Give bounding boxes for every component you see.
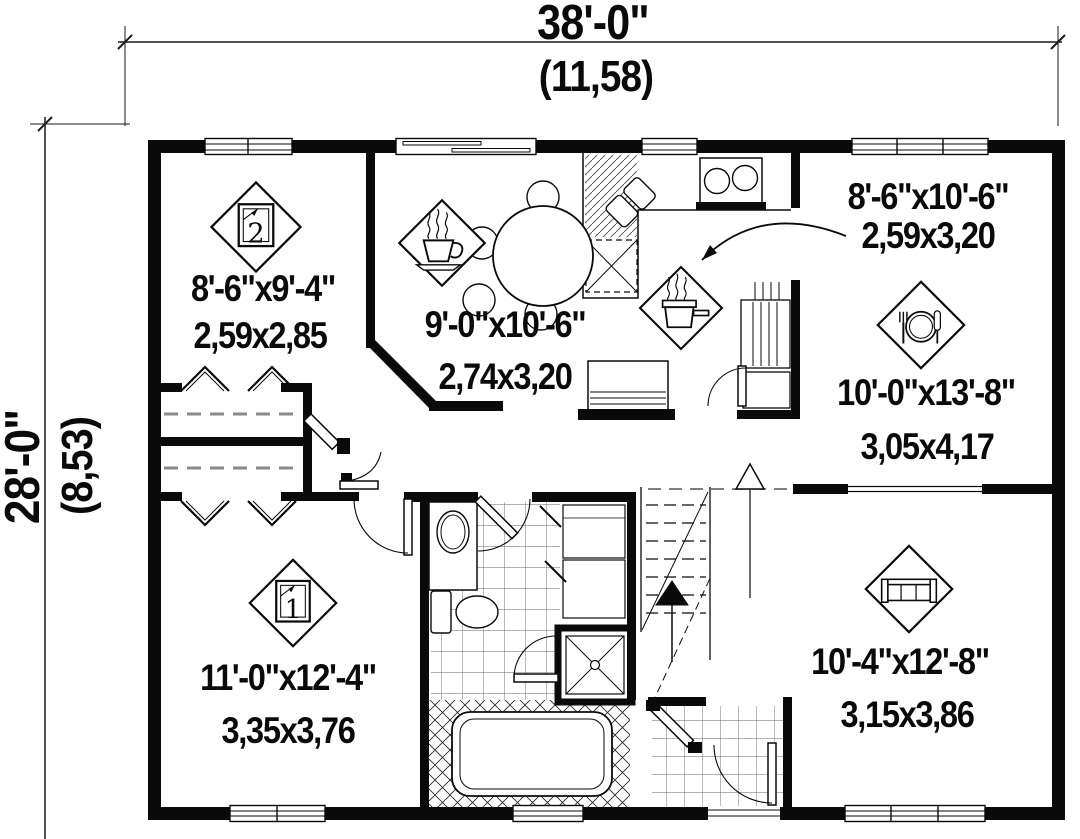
- bedroom-2-size-metric: 2,59x2,85: [194, 315, 327, 357]
- toilet-icon: [431, 591, 451, 633]
- kitchen-size-metric: 2,59x3,20: [862, 215, 995, 257]
- linen-cabinet: [563, 505, 625, 558]
- bedroom-2-number: 2: [247, 218, 264, 249]
- bedroom-1-number: 1: [285, 594, 302, 625]
- living-room-size-imperial: 10'-4"x12'-8": [811, 641, 989, 683]
- place-setting-icon: [873, 277, 970, 374]
- dining-room-size-imperial: 10'-0"x13'-8": [837, 372, 1015, 414]
- overall-depth-metric: (8,53): [53, 417, 103, 515]
- sofa-icon: [861, 541, 958, 638]
- room-icon-dinette: [394, 195, 490, 291]
- room-icon-bedroom-2: 2: [206, 177, 306, 277]
- bedroom-1-size-imperial: 11'-0"x12'-4": [200, 657, 376, 699]
- cooking-pot-icon: [635, 262, 727, 354]
- bathtub: [429, 700, 630, 807]
- dinette-size-imperial: 9'-0"x10'-6": [425, 304, 586, 346]
- room-icon-kitchen: [635, 262, 727, 354]
- furnace-closet: [741, 282, 790, 408]
- room-icon-bedroom-1: 1: [245, 555, 342, 652]
- coffee-cup-icon: [394, 195, 490, 291]
- kitchen-size-imperial: 8'-6"x10'-6": [848, 176, 1009, 218]
- bed-icon: 1: [245, 555, 342, 652]
- room-icon-dining: [873, 277, 970, 374]
- dinette-size-metric: 2,74x3,20: [439, 356, 572, 398]
- cased-opening: [848, 487, 982, 492]
- stairs-up-arrow-icon: [656, 581, 688, 662]
- hall-direction-arrow-icon: [736, 464, 764, 598]
- bedroom-1-size-metric: 3,35x3,76: [222, 710, 355, 752]
- room-icon-living: [861, 541, 958, 638]
- overall-depth-imperial: 28'-0": [0, 410, 51, 524]
- overall-width-metric: (11,58): [539, 52, 653, 102]
- sink-icon: [437, 511, 469, 553]
- kitchen-leader-arrow: [702, 223, 846, 260]
- floor-plan-canvas: 38'-0" (11,58) 28'-0" (8,53) 8'-6"x9'-4"…: [0, 0, 1080, 839]
- dining-room-size-metric: 3,05x4,17: [861, 426, 994, 468]
- refrigerator-icon: [588, 361, 668, 410]
- bed-icon: 2: [206, 177, 306, 277]
- living-room-size-metric: 3,15x3,86: [841, 694, 974, 736]
- overall-width-imperial: 38'-0": [537, 0, 649, 51]
